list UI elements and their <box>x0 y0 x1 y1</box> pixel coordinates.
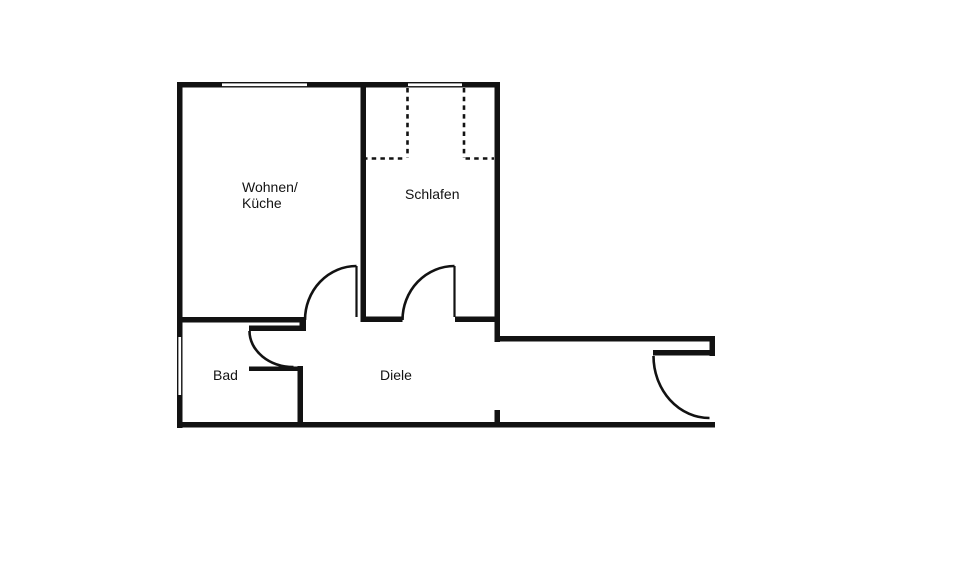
wall-right-outer <box>495 82 501 342</box>
wall-bottom-outer <box>177 422 715 428</box>
window-top-wohnen-kueche <box>222 82 307 88</box>
wall-bad-lower-stub <box>249 367 303 372</box>
window-line-inner <box>408 86 462 87</box>
door-swing-arc <box>305 266 357 320</box>
window-left-bad <box>177 337 183 395</box>
door-swing-arc <box>250 331 294 367</box>
wall-bad-diele <box>298 366 304 427</box>
door-leaf <box>653 350 715 356</box>
room-label-wohnen-kueche-line2: Küche <box>242 195 282 211</box>
room-label-bad: Bad <box>213 367 238 383</box>
door-leaf <box>453 266 455 317</box>
window-line-inner <box>181 337 182 395</box>
door-wohnen-kueche <box>305 266 358 320</box>
wall-divider-wohnen-schlafen <box>361 85 367 321</box>
room-label-schlafen: Schlafen <box>405 186 459 202</box>
wall-mid-segment-right <box>455 317 500 323</box>
window-line-inner <box>222 86 307 87</box>
floorplan-canvas: Wohnen/ Küche Schlafen Bad Diele <box>0 0 960 569</box>
window-line-outer <box>408 82 462 83</box>
door-entrance <box>653 350 715 418</box>
window-line-outer <box>177 337 178 395</box>
window-top-schlafen <box>408 82 462 88</box>
room-label-wohnen-kueche-line1: Wohnen/ <box>242 179 298 195</box>
door-schlafen <box>403 266 456 320</box>
door-leaf <box>355 266 357 317</box>
door-swing-arc <box>403 266 455 320</box>
wall-mid-segment-left <box>361 317 403 323</box>
door-leaf <box>249 326 303 332</box>
dashed-outline-schlafen <box>363 88 494 159</box>
wall-corridor-top <box>495 336 716 342</box>
door-bad <box>249 326 303 368</box>
door-swing-arc <box>654 356 710 418</box>
wall-diele-corridor-tick <box>495 410 501 422</box>
wall-wohnen-bad <box>177 317 305 323</box>
window-line-outer <box>222 82 307 83</box>
room-label-diele: Diele <box>380 367 412 383</box>
